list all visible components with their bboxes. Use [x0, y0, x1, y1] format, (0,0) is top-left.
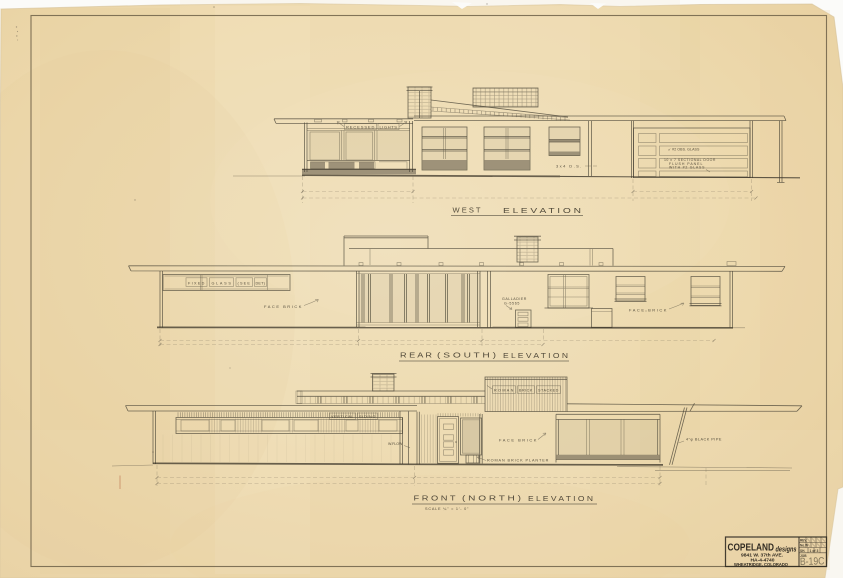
svg-text:ROMAN BRICK PLANTER: ROMAN BRICK PLANTER [487, 459, 549, 463]
svg-text:FACE BRICK: FACE BRICK [629, 308, 667, 313]
svg-text:R E A R: R E A R [400, 351, 433, 360]
svg-text:SCALE ¼" = 1′- 0": SCALE ¼" = 1′- 0" [425, 507, 469, 511]
svg-text:3x4 D.S.: 3x4 D.S. [556, 164, 582, 169]
svg-text:( S O U T H ): ( S O U T H ) [437, 351, 497, 360]
svg-text:VERTICAL: VERTICAL [331, 415, 354, 419]
svg-text:BRICK: BRICK [519, 389, 533, 393]
svg-text:F R O N T: F R O N T [414, 494, 456, 503]
svg-text:B-19C: B-19C [800, 555, 825, 568]
svg-text:FACE BRICK: FACE BRICK [264, 304, 302, 309]
svg-text:No.W: No.W [800, 544, 808, 548]
svg-text:4"φ BLACK PIPE: 4"φ BLACK PIPE [686, 438, 722, 442]
svg-text:↙ #2 OBS. GLASS: ↙ #2 OBS. GLASS [668, 148, 700, 152]
svg-text:WITH #2 GLASS: WITH #2 GLASS [669, 166, 705, 170]
svg-text:W.FLOW: W.FLOW [388, 442, 403, 446]
svg-text:WHEATRIDGE, COLORADO: WHEATRIDGE, COLORADO [734, 562, 789, 567]
svg-text:GLASS: GLASS [212, 282, 232, 286]
svg-text:1 of 3: 1 of 3 [810, 549, 819, 553]
svg-text:W E S T: W E S T [453, 206, 481, 215]
svg-text:GALLADIER: GALLADIER [502, 297, 527, 301]
svg-text:REV.: REV. [800, 539, 807, 543]
svg-text:(SEE: (SEE [238, 282, 251, 286]
svg-text:SH.: SH. [800, 549, 805, 553]
svg-text:DET): DET) [256, 282, 266, 286]
svg-text:FACE BRICK: FACE BRICK [499, 438, 537, 443]
svg-text:E L E V A T I O N: E L E V A T I O N [528, 494, 593, 503]
svg-text:FIXED: FIXED [188, 282, 205, 286]
svg-text:G-5565: G-5565 [504, 301, 520, 305]
svg-text:STACKED: STACKED [538, 389, 559, 393]
svg-text:SIDING: SIDING [359, 415, 376, 419]
svg-text:E L E V A T I O N: E L E V A T I O N [503, 351, 568, 360]
svg-text:( N O R T H ): ( N O R T H ) [462, 494, 522, 503]
svg-text:ROMAN: ROMAN [494, 389, 514, 393]
svg-text:E L E V A T I O N: E L E V A T I O N [503, 206, 581, 215]
